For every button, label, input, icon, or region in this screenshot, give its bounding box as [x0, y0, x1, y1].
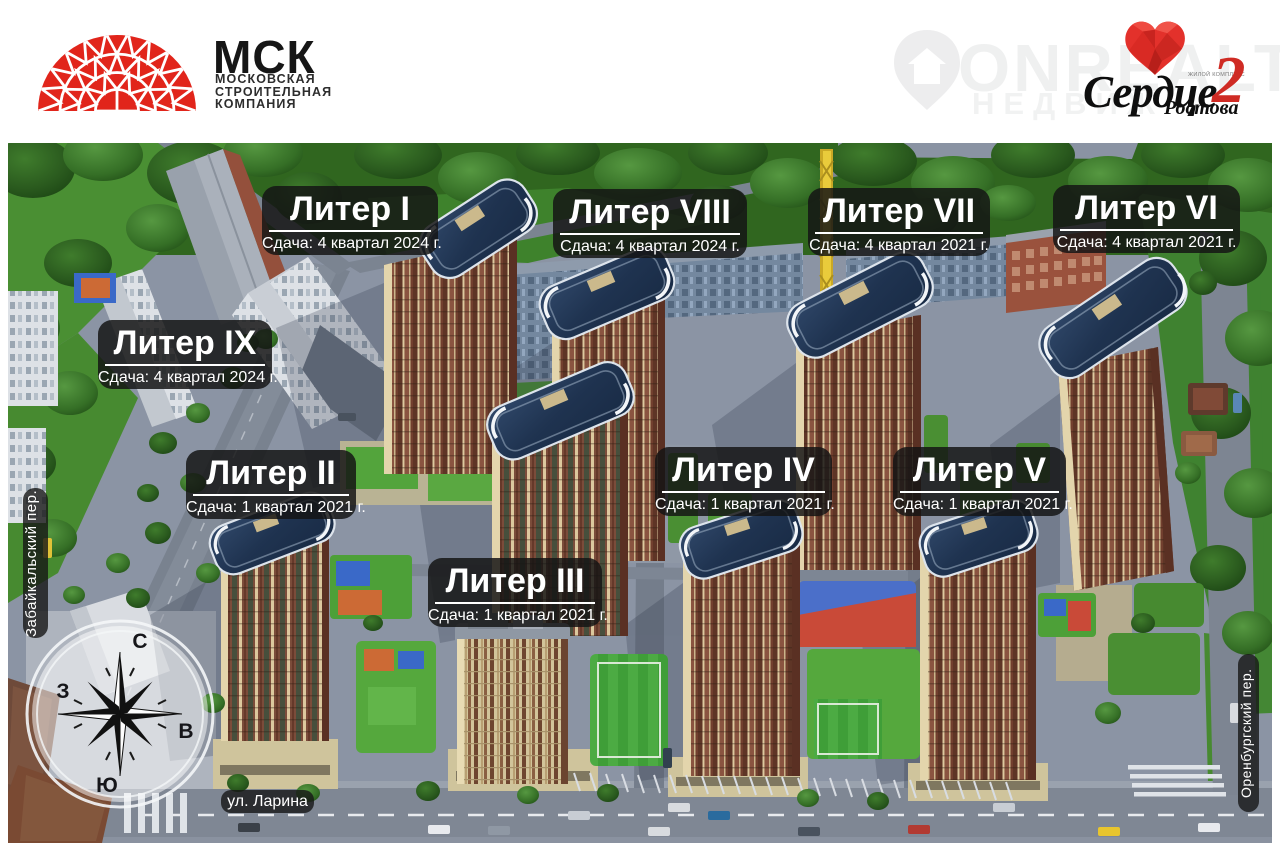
svg-text:Ю: Ю	[96, 774, 118, 797]
svg-text:В: В	[178, 720, 193, 743]
svg-text:З: З	[56, 680, 69, 703]
svg-text:С: С	[132, 630, 147, 653]
